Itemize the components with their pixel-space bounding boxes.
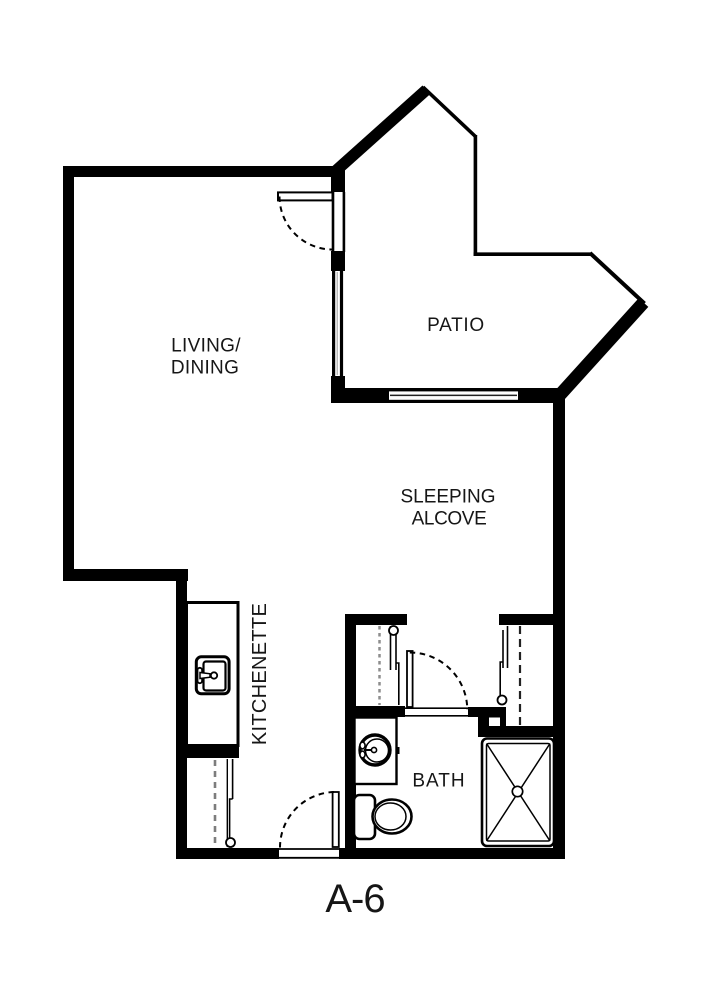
svg-text:SLEEPING: SLEEPING <box>400 487 495 508</box>
svg-text:BATH: BATH <box>412 771 465 792</box>
svg-text:LIVING/: LIVING/ <box>171 336 241 357</box>
svg-text:PATIO: PATIO <box>427 315 485 336</box>
svg-text:A-6: A-6 <box>325 877 384 921</box>
svg-text:ALCOVE: ALCOVE <box>412 509 487 530</box>
svg-text:KITCHENETTE: KITCHENETTE <box>249 603 271 745</box>
svg-text:DINING: DINING <box>171 358 239 379</box>
